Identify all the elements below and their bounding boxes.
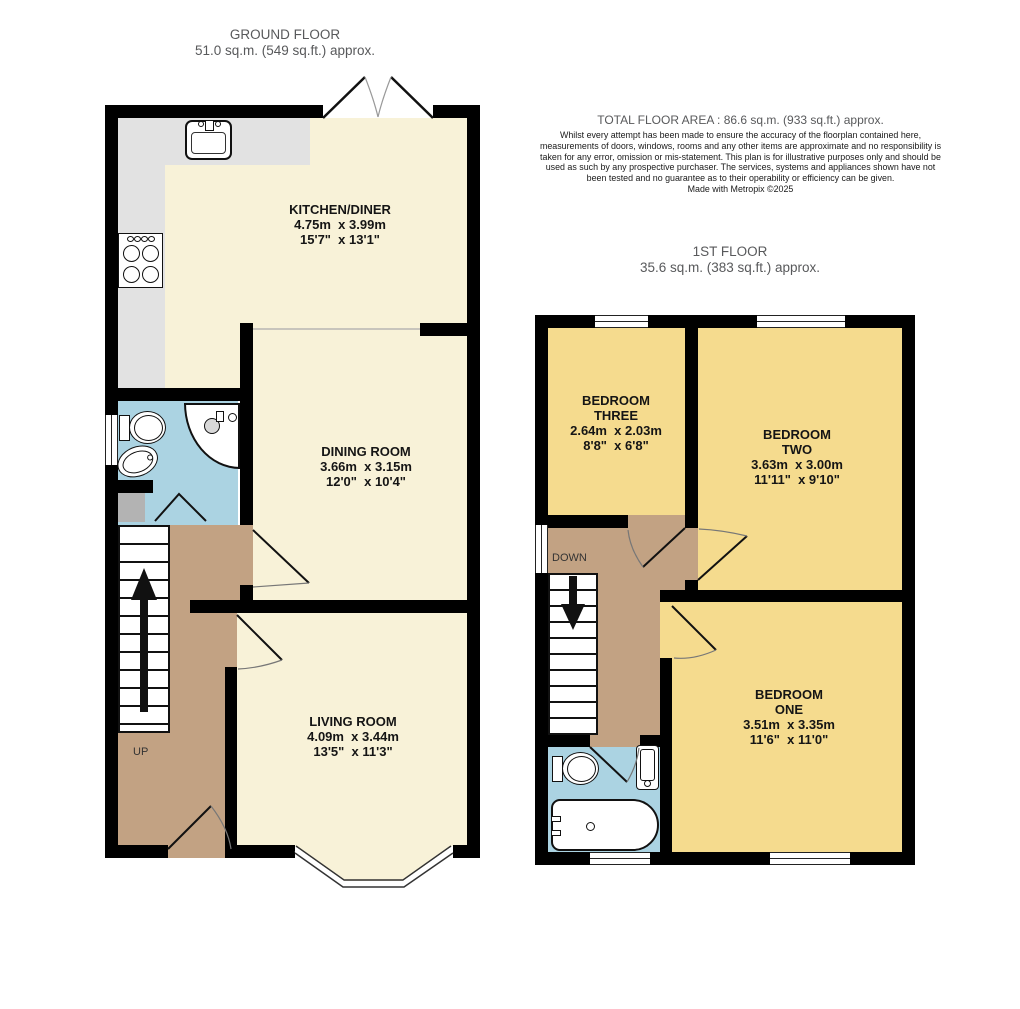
room-name: BEDROOM — [743, 687, 835, 702]
wall-segment — [535, 852, 590, 865]
bedroom-one-door-gap — [660, 602, 672, 658]
room-dims-metric: 2.64m x 2.03m — [570, 423, 662, 438]
wall-segment — [850, 852, 915, 865]
first-floor-title-line: 1ST FLOOR — [640, 244, 820, 260]
room-dims-metric: 3.51m x 3.35m — [743, 717, 835, 732]
first-floor-area: 35.6 sq.m. (383 sq.ft.) approx. — [640, 260, 820, 276]
room-name: BEDROOM — [751, 427, 843, 442]
basin-tap — [644, 780, 651, 787]
room-name: KITCHEN/DINER — [289, 202, 391, 217]
first-floor-title: 1ST FLOOR 35.6 sq.m. (383 sq.ft.) approx… — [640, 244, 820, 276]
bedroom-two-label: BEDROOM TWO 3.63m x 3.00m 11'11" x 9'10" — [751, 427, 843, 487]
room-name: ONE — [743, 702, 835, 717]
room-dims-metric: 4.09m x 3.44m — [307, 729, 399, 744]
stairs-down — [548, 573, 598, 735]
room-dims-imperial: 15'7" x 13'1" — [289, 232, 391, 247]
floorplan-canvas: UP — [0, 0, 1020, 1009]
basin-inner — [640, 749, 655, 781]
wall-segment — [548, 515, 628, 528]
ground-floor-area: 51.0 sq.m. (549 sq.ft.) approx. — [195, 43, 375, 59]
total-floor-area: TOTAL FLOOR AREA : 86.6 sq.m. (933 sq.ft… — [538, 113, 943, 127]
bedroom-three-door-gap — [628, 515, 685, 528]
metropix-credit: Made with Metropix ©2025 — [538, 184, 943, 195]
room-name: TWO — [751, 442, 843, 457]
toilet-bowl-inner — [567, 756, 596, 782]
wall-segment — [535, 573, 548, 865]
wall-segment — [535, 735, 590, 747]
bedroom-one-window — [770, 852, 850, 865]
wall-segment — [685, 315, 698, 528]
wall-segment — [660, 590, 902, 602]
room-name: BEDROOM — [570, 393, 662, 408]
bath-plug — [586, 822, 595, 831]
kitchen-diner-label: KITCHEN/DINER 4.75m x 3.99m 15'7" x 13'1… — [289, 202, 391, 247]
dining-room-label: DINING ROOM 3.66m x 3.15m 12'0" x 10'4" — [320, 444, 412, 489]
ground-floor-title-line: GROUND FLOOR — [195, 27, 375, 43]
bedroom-three-window — [595, 315, 648, 328]
bath-tap — [551, 830, 561, 836]
wall-segment — [902, 315, 915, 865]
room-dims-imperial: 13'5" x 11'3" — [307, 744, 399, 759]
stairs-down-label: DOWN — [552, 552, 587, 564]
room-dims-imperial: 11'6" x 11'0" — [743, 732, 835, 747]
room-name: LIVING ROOM — [307, 714, 399, 729]
disclaimer-text: Whilst every attempt has been made to en… — [538, 130, 943, 184]
wall-segment — [648, 315, 757, 328]
bathroom-window — [590, 852, 650, 865]
bedroom-one-label: BEDROOM ONE 3.51m x 3.35m 11'6" x 11'0" — [743, 687, 835, 747]
bathroom-door-gap — [590, 735, 640, 747]
landing-window — [535, 525, 548, 573]
room-dims-imperial: 12'0" x 10'4" — [320, 474, 412, 489]
bedroom-three-label: BEDROOM THREE 2.64m x 2.03m 8'8" x 6'8" — [570, 393, 662, 453]
bathroom-basin-icon — [636, 745, 659, 790]
room-dims-imperial: 11'11" x 9'10" — [751, 472, 843, 487]
room-name: DINING ROOM — [320, 444, 412, 459]
bedroom-two-door-gap — [685, 528, 698, 580]
room-dims-metric: 3.63m x 3.00m — [751, 457, 843, 472]
bedroom-two-window — [757, 315, 845, 328]
ground-floor-title: GROUND FLOOR 51.0 sq.m. (549 sq.ft.) app… — [195, 27, 375, 59]
bathtub-icon — [551, 799, 659, 851]
bath-tap — [551, 816, 561, 822]
room-dims-metric: 4.75m x 3.99m — [289, 217, 391, 232]
wall-segment — [535, 315, 548, 525]
living-room-label: LIVING ROOM 4.09m x 3.44m 13'5" x 11'3" — [307, 714, 399, 759]
room-name: THREE — [570, 408, 662, 423]
room-dims-imperial: 8'8" x 6'8" — [570, 438, 662, 453]
wall-segment — [660, 658, 672, 854]
floor-area-summary: TOTAL FLOOR AREA : 86.6 sq.m. (933 sq.ft… — [538, 113, 943, 195]
room-dims-metric: 3.66m x 3.15m — [320, 459, 412, 474]
toilet-icon — [552, 752, 602, 786]
